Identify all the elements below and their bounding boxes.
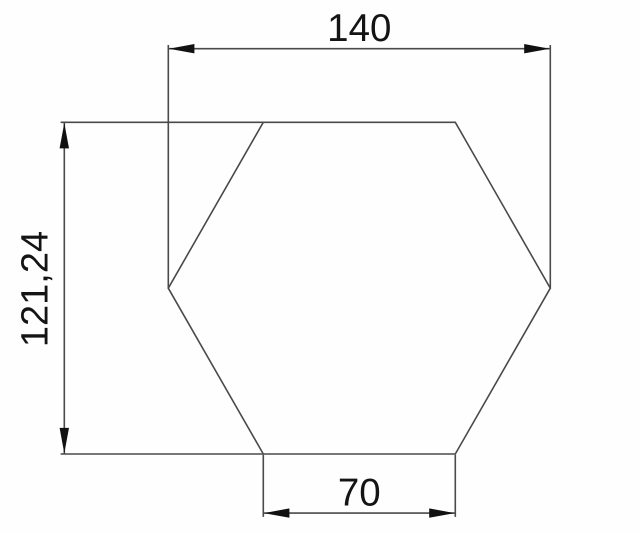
svg-text:140: 140	[327, 7, 391, 50]
svg-text:121,24: 121,24	[15, 231, 57, 347]
svg-text:70: 70	[338, 472, 381, 515]
